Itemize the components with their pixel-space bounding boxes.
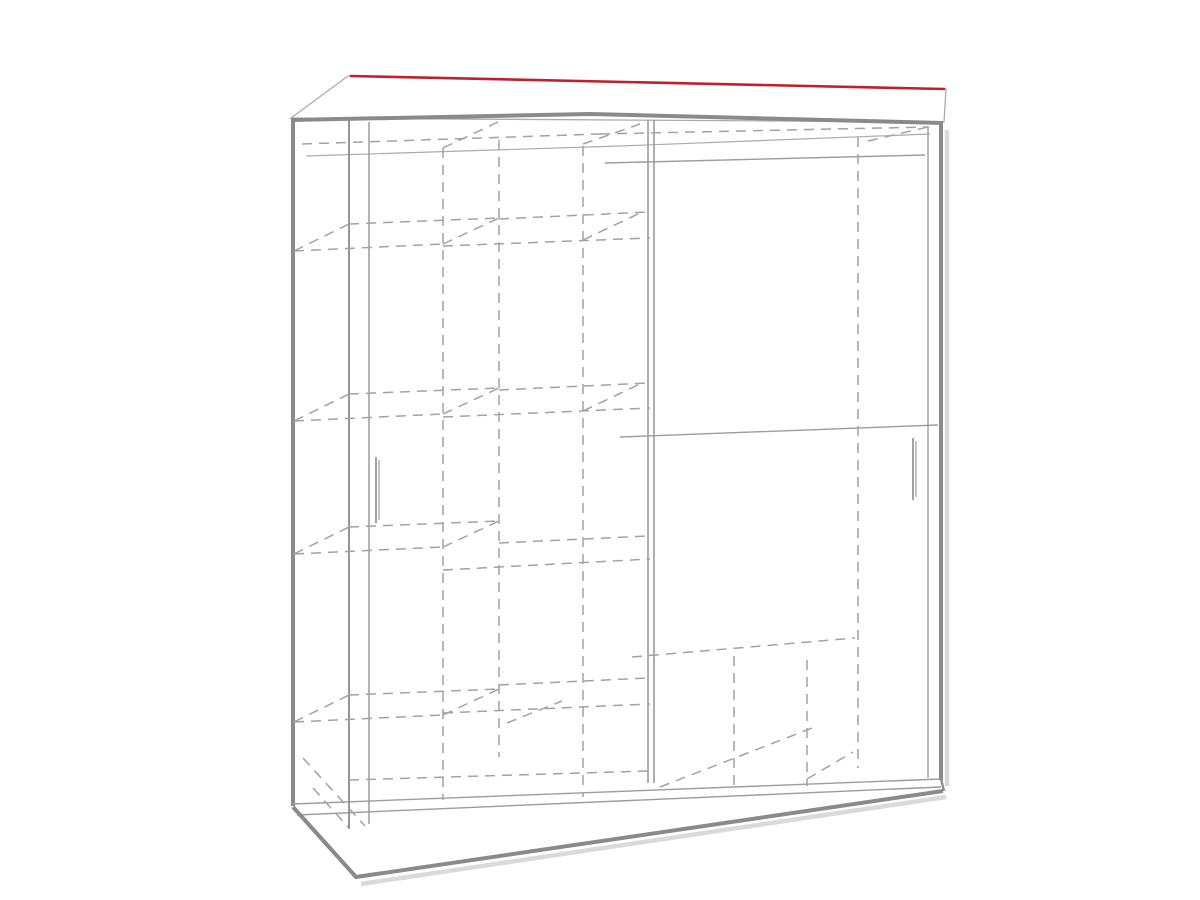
interior-dashed-lines: [294, 122, 928, 827]
wardrobe-structure: [291, 114, 944, 877]
wardrobe-diagram: [0, 0, 1200, 900]
diagram-canvas: [0, 0, 1200, 900]
